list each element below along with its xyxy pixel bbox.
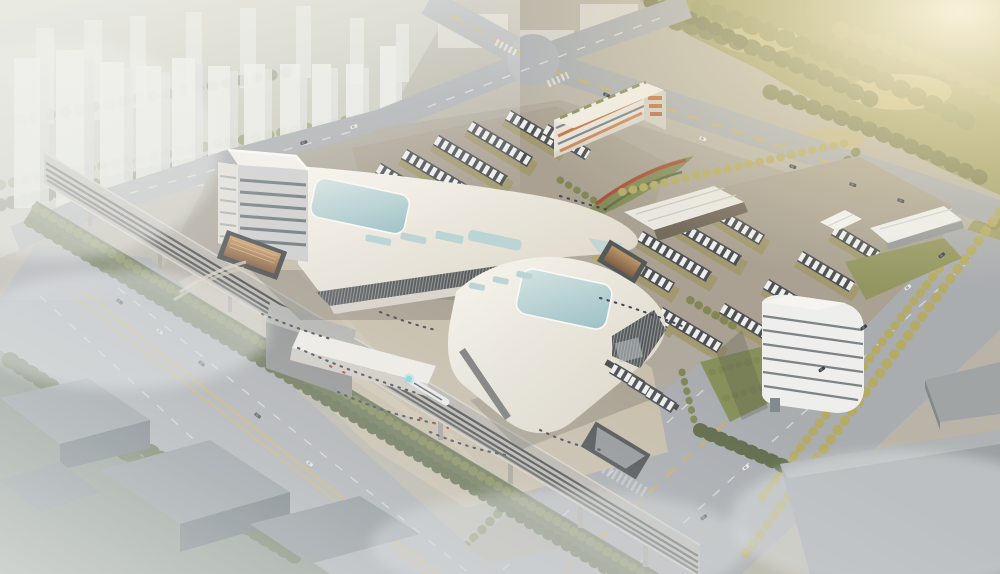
atmosphere	[0, 0, 1000, 574]
aerial-rendering	[0, 0, 1000, 574]
rendering-canvas	[0, 0, 1000, 574]
